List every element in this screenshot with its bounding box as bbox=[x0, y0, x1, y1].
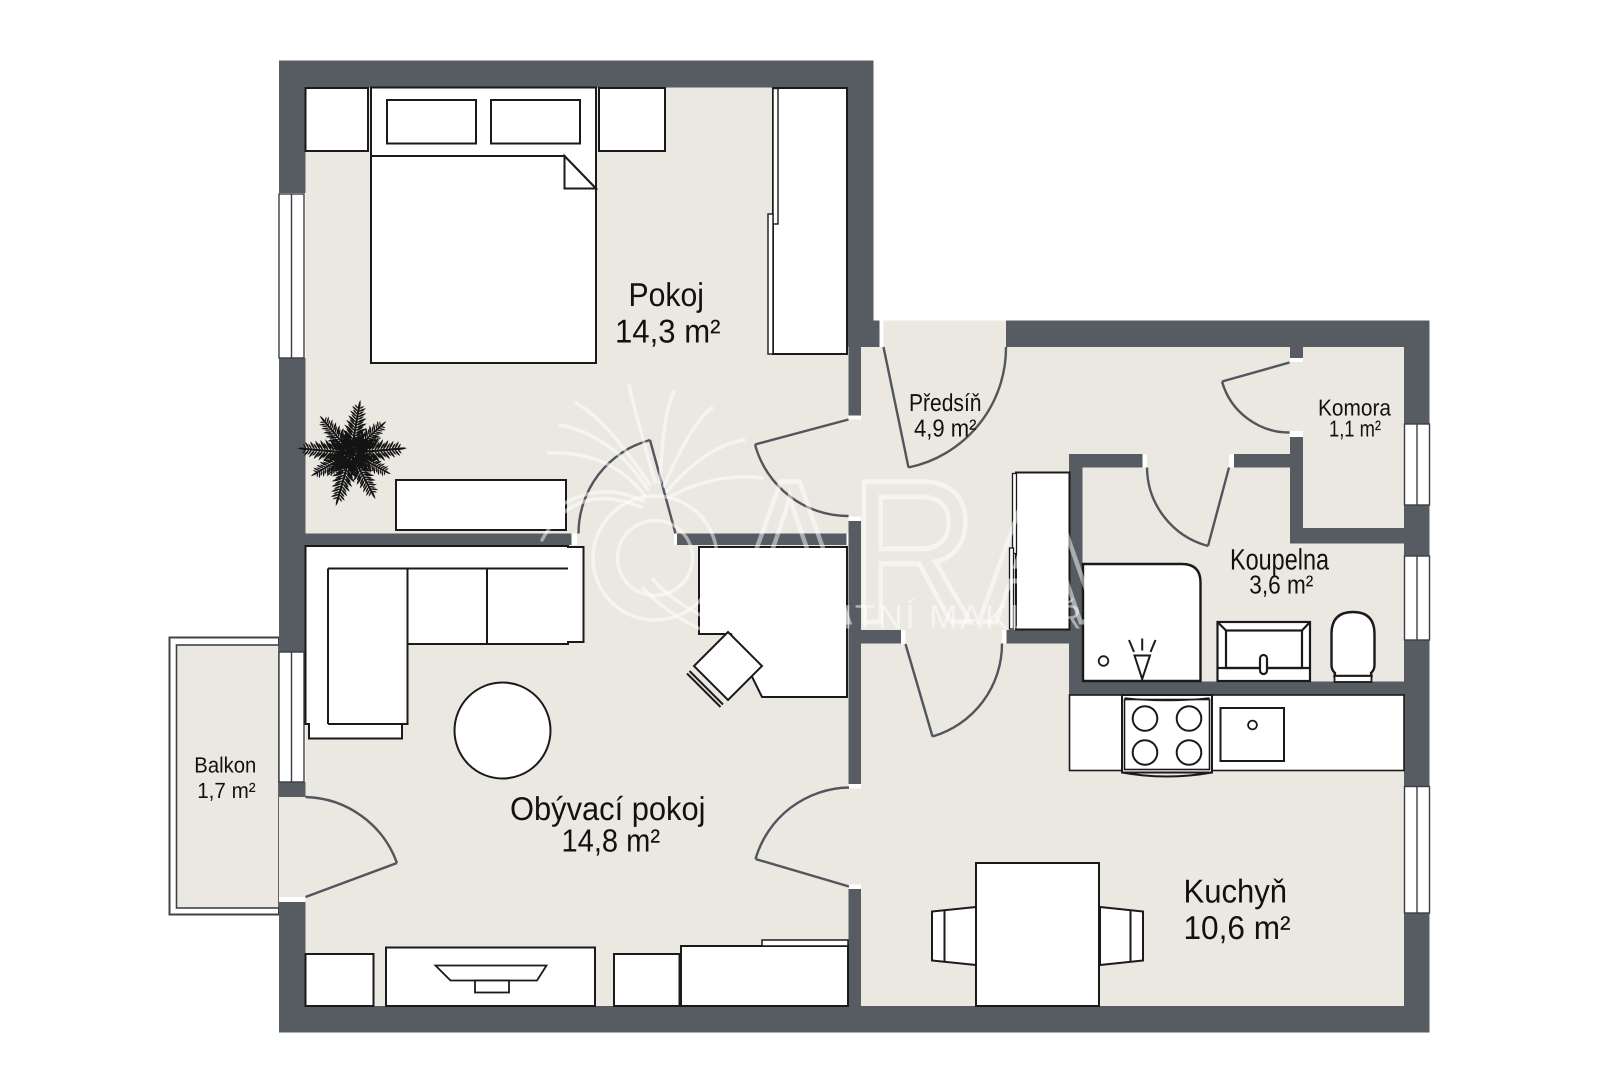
svg-text:1,1 m²: 1,1 m² bbox=[1329, 416, 1381, 442]
svg-text:1,7 m²: 1,7 m² bbox=[197, 778, 256, 803]
svg-text:14,3 m²: 14,3 m² bbox=[615, 313, 721, 350]
svg-text:14,8 m²: 14,8 m² bbox=[562, 823, 661, 859]
svg-text:10,6 m²: 10,6 m² bbox=[1184, 909, 1291, 946]
svg-text:3,6 m²: 3,6 m² bbox=[1249, 569, 1313, 599]
svg-text:Předsíň: Předsíň bbox=[909, 390, 982, 417]
svg-text:REALITNÍ MAKLÉŘI: REALITNÍ MAKLÉŘI bbox=[744, 599, 1096, 637]
svg-text:Kuchyň: Kuchyň bbox=[1184, 873, 1288, 910]
svg-text:Pokoj: Pokoj bbox=[629, 276, 705, 313]
svg-text:Obývací pokoj: Obývací pokoj bbox=[510, 790, 706, 827]
svg-text:Balkon: Balkon bbox=[194, 753, 256, 778]
